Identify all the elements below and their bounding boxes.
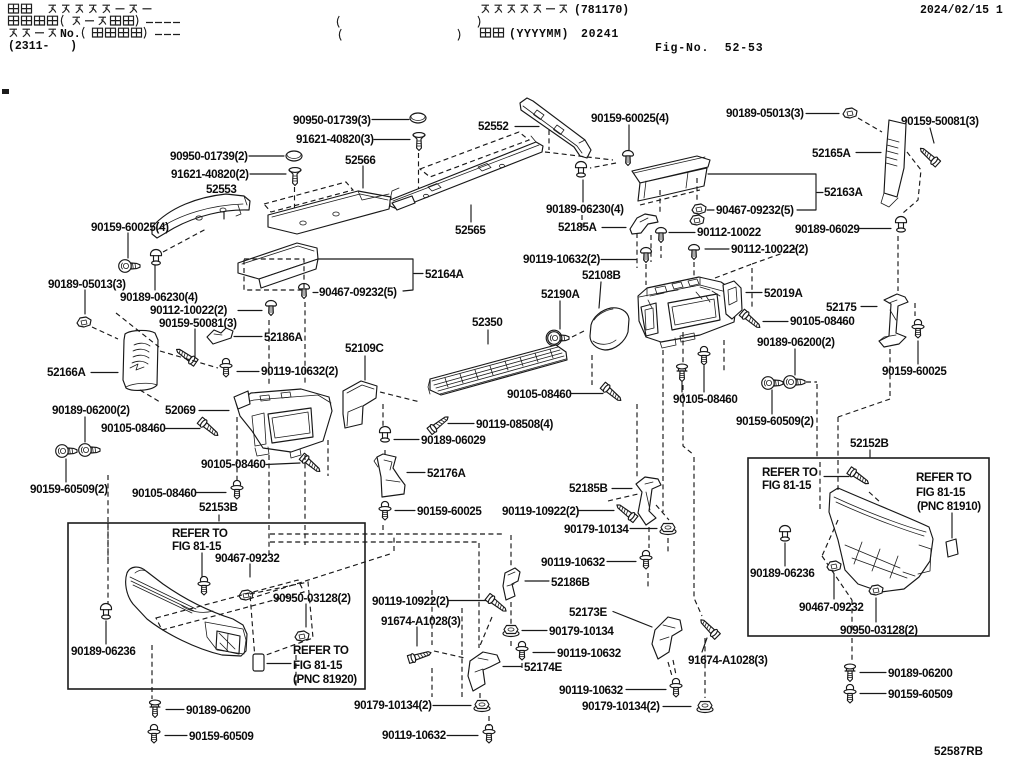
svg-text:90119-10632(2): 90119-10632(2) — [523, 253, 600, 266]
svg-text:91621-40820(2): 91621-40820(2) — [171, 168, 249, 181]
svg-text:90119-10632(2): 90119-10632(2) — [261, 365, 338, 378]
svg-text:52176A: 52176A — [427, 467, 466, 480]
svg-text:52175: 52175 — [826, 301, 857, 314]
svg-text:(781170): (781170) — [574, 4, 629, 17]
svg-text:(PNC 81920): (PNC 81920) — [293, 673, 357, 686]
svg-text:91674-A1028(3): 91674-A1028(3) — [381, 615, 461, 628]
svg-text:90105-08460: 90105-08460 — [201, 458, 266, 471]
svg-text:90189-06200: 90189-06200 — [186, 704, 251, 717]
svg-text:90189-06200(2): 90189-06200(2) — [52, 404, 130, 417]
svg-text:90189-05013(3): 90189-05013(3) — [726, 107, 804, 120]
svg-text:90467-09232: 90467-09232 — [799, 601, 864, 614]
svg-text:90159-50081(3): 90159-50081(3) — [901, 115, 979, 128]
svg-text:52163A: 52163A — [824, 186, 863, 199]
svg-text:90159-60025: 90159-60025 — [417, 505, 482, 518]
svg-text:90159-60509: 90159-60509 — [189, 730, 254, 743]
svg-text:52069: 52069 — [165, 404, 196, 417]
svg-text:90159-60025: 90159-60025 — [882, 365, 947, 378]
svg-text:52174E: 52174E — [524, 661, 562, 674]
svg-text:REFER TO: REFER TO — [293, 644, 349, 657]
svg-text:52566: 52566 — [345, 154, 376, 167]
svg-text:91674-A1028(3): 91674-A1028(3) — [688, 654, 768, 667]
svg-text:90159-60025(4): 90159-60025(4) — [591, 112, 669, 125]
svg-text:52153B: 52153B — [199, 501, 238, 514]
svg-text:20241: 20241 — [581, 28, 619, 41]
svg-text:90112-10022(2): 90112-10022(2) — [150, 304, 227, 317]
svg-text:FIG 81-15: FIG 81-15 — [293, 659, 343, 672]
svg-text:90189-06230(4): 90189-06230(4) — [120, 291, 198, 304]
svg-text:52565: 52565 — [455, 224, 486, 237]
svg-text:90189-06230(4): 90189-06230(4) — [546, 203, 624, 216]
svg-text:90105-08460: 90105-08460 — [507, 388, 572, 401]
svg-text:52185A: 52185A — [558, 221, 597, 234]
svg-text:90119-10922(2): 90119-10922(2) — [372, 595, 449, 608]
svg-text:90179-10134: 90179-10134 — [564, 523, 629, 536]
svg-text:52587RB: 52587RB — [934, 745, 983, 758]
svg-text:90119-10632: 90119-10632 — [541, 556, 605, 569]
svg-text:REFER TO: REFER TO — [172, 527, 228, 540]
svg-text:90105-08460: 90105-08460 — [101, 422, 166, 435]
svg-text:52186A: 52186A — [264, 331, 303, 344]
svg-text:90105-08460: 90105-08460 — [673, 393, 738, 406]
svg-text:90950-01739(3): 90950-01739(3) — [293, 114, 371, 127]
svg-text:52019A: 52019A — [764, 287, 803, 300]
svg-text:90950-03128(2): 90950-03128(2) — [273, 592, 351, 605]
svg-text:52152B: 52152B — [850, 437, 889, 450]
svg-text:90189-06236: 90189-06236 — [750, 567, 815, 580]
svg-text:52108B: 52108B — [582, 269, 621, 282]
svg-text:52185B: 52185B — [569, 482, 608, 495]
svg-text:90119-10632: 90119-10632 — [559, 684, 623, 697]
svg-text:90159-60509(2): 90159-60509(2) — [30, 483, 108, 496]
svg-text:FIG 81-15: FIG 81-15 — [916, 486, 966, 499]
svg-text:REFER TO: REFER TO — [762, 466, 818, 479]
svg-text:2024/02/15 1: 2024/02/15 1 — [920, 4, 1003, 17]
svg-text:90105-08460: 90105-08460 — [790, 315, 855, 328]
svg-text:90112-10022: 90112-10022 — [697, 226, 761, 239]
svg-text:52186B: 52186B — [551, 576, 590, 589]
svg-text:90159-60509: 90159-60509 — [888, 688, 953, 701]
svg-text:90119-10922(2): 90119-10922(2) — [502, 505, 579, 518]
svg-text:90119-10632: 90119-10632 — [382, 729, 446, 742]
svg-text:90159-60509(2): 90159-60509(2) — [736, 415, 814, 428]
svg-text:90119-10632: 90119-10632 — [557, 647, 621, 660]
svg-text:90105-08460: 90105-08460 — [132, 487, 197, 500]
svg-text:52164A: 52164A — [425, 268, 464, 281]
svg-text:90179-10134(2): 90179-10134(2) — [582, 700, 660, 713]
svg-text:52165A: 52165A — [812, 147, 851, 160]
svg-text:90950-03128(2): 90950-03128(2) — [840, 624, 918, 637]
svg-text:90467-09232(5): 90467-09232(5) — [319, 286, 397, 299]
svg-text:90950-01739(2): 90950-01739(2) — [170, 150, 248, 163]
svg-text:90189-06200(2): 90189-06200(2) — [757, 336, 835, 349]
svg-text:91621-40820(3): 91621-40820(3) — [296, 133, 374, 146]
svg-text:90467-09232(5): 90467-09232(5) — [716, 204, 794, 217]
svg-text:90189-06236: 90189-06236 — [71, 645, 136, 658]
svg-text:90189-06029: 90189-06029 — [421, 434, 486, 447]
svg-text:Fig-No. 52-53: Fig-No. 52-53 — [655, 42, 764, 55]
svg-text:52552: 52552 — [478, 120, 509, 133]
svg-text:90467-09232: 90467-09232 — [215, 552, 280, 565]
svg-text:52190A: 52190A — [541, 288, 580, 301]
svg-text:52173E: 52173E — [569, 606, 607, 619]
svg-text:90179-10134: 90179-10134 — [549, 625, 614, 638]
svg-text:90189-05013(3): 90189-05013(3) — [48, 278, 126, 291]
svg-text:90119-08508(4): 90119-08508(4) — [476, 418, 553, 431]
svg-text:(YYYYMM): (YYYYMM) — [509, 28, 569, 41]
svg-text:90159-60025(4): 90159-60025(4) — [91, 221, 169, 234]
svg-text:FIG 81-15: FIG 81-15 — [762, 479, 812, 492]
svg-text:52109C: 52109C — [345, 342, 384, 355]
svg-text:52166A: 52166A — [47, 366, 86, 379]
svg-text:52350: 52350 — [472, 316, 503, 329]
svg-text:90189-06200: 90189-06200 — [888, 667, 953, 680]
svg-text:90112-10022(2): 90112-10022(2) — [731, 243, 808, 256]
svg-text:90179-10134(2): 90179-10134(2) — [354, 699, 432, 712]
svg-text:90189-06029: 90189-06029 — [795, 223, 860, 236]
svg-text:REFER TO: REFER TO — [916, 471, 972, 484]
svg-text:(PNC 81910): (PNC 81910) — [917, 500, 981, 513]
svg-text:(2311- ): (2311- ) — [8, 40, 77, 53]
